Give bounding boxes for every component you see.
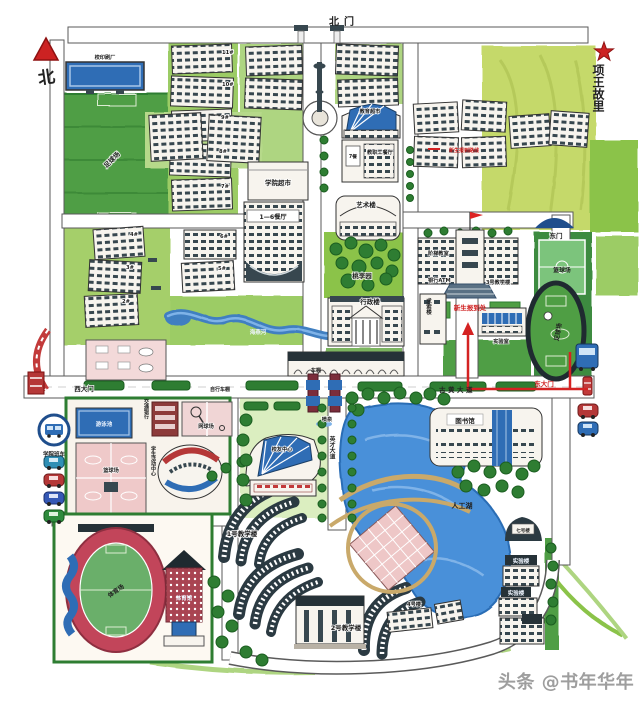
b7-label: 七号楼: [516, 527, 530, 534]
teach1-label: 1号教学楼: [227, 529, 258, 538]
car-icon: [44, 510, 64, 524]
car-icon: [44, 456, 64, 470]
car-icon: [578, 422, 598, 437]
pingpong-plaza: [86, 340, 166, 380]
canteen16-label: 1—6餐厅: [259, 213, 287, 221]
west-gate-arch: [28, 330, 48, 394]
front-steps: [442, 284, 496, 298]
north-boundary-road: [68, 27, 588, 43]
lab2-label: 实验楼: [508, 589, 525, 597]
haiyan-label: 海燕河: [250, 328, 267, 336]
east-gate-north-label: 东门: [550, 231, 564, 240]
bus-icon: [576, 344, 598, 371]
dorm-7: [171, 178, 232, 211]
activity-label: 学生活动中心: [150, 445, 156, 477]
soccer-ball-icon: [544, 312, 552, 320]
bikeshed1-label: 自行车棚: [210, 386, 230, 393]
alumni-center: [246, 434, 321, 496]
dorm-5-label: 5#: [218, 266, 226, 272]
bikeshed2-label: 车棚: [311, 367, 321, 374]
staff-canteen-label: 教职工餐厅: [366, 148, 394, 156]
north-gate-label: 北门: [329, 15, 359, 28]
art-label: 艺术楼: [356, 200, 376, 209]
campus-map: 北门 北 项王故里 校印刷厂 足球场 11# 10# 9# 8# 7# 6# 5…: [0, 0, 640, 701]
teach2-label: 2号教学楼: [331, 623, 362, 632]
dorm-4-label: 4#: [130, 232, 138, 238]
tennis-label: 网球场: [198, 422, 214, 430]
car-icons-left: [44, 456, 64, 524]
lab1-label: 实验楼: [513, 557, 530, 565]
gym-label: 体育馆: [176, 594, 193, 602]
pillar-teaching-building: [294, 596, 366, 649]
lake-label: 人工湖: [452, 501, 473, 510]
watermark: 头条 @书年华年: [498, 671, 634, 693]
compass-north-label: 北: [37, 67, 57, 89]
college-market-label: 学院超市: [265, 178, 292, 187]
car-icon: [44, 492, 64, 506]
admin-label: 行政楼: [359, 297, 380, 306]
stadium-block: [54, 514, 212, 662]
shuttle-label: 学院班车: [43, 450, 66, 458]
west-gate-label: 西大门: [74, 384, 94, 393]
bldg4-label: 4号楼: [407, 600, 422, 608]
lab-small-label: 实验室: [493, 337, 509, 345]
basketball-left-label: 篮球场: [102, 466, 119, 474]
sculpture-pole: [317, 62, 322, 112]
dorm-10-label: 10#: [222, 82, 234, 88]
lecture-label: 阶梯教室: [428, 249, 449, 257]
east-gate-main-label: 东大门: [534, 379, 554, 388]
dorm-3-label: 3#: [126, 265, 134, 271]
teach3-label: 3号教学楼: [486, 278, 511, 286]
map-canvas: 北门 北 项王故里 校印刷厂 足球场 11# 10# 9# 8# 7# 6# 5…: [0, 0, 640, 701]
dorm-2: [84, 294, 139, 328]
colonnade-building: [288, 352, 404, 376]
southeast-buildings: [499, 517, 544, 644]
qiusuo-label: 求索楼: [425, 297, 432, 316]
car-icon: [44, 474, 64, 488]
fountain-label: 喷泉: [322, 415, 333, 423]
small-lab-building: [478, 308, 526, 336]
dorm-9-label: 9#: [221, 115, 229, 121]
dorm-2-label: 2#: [122, 299, 130, 305]
print-factory-label: 校印刷厂: [95, 53, 116, 61]
dorm-6: [184, 230, 236, 259]
library-glass-column: [492, 410, 512, 466]
registration-label: 新生报到处: [454, 303, 487, 312]
landmark-label: 项王故里: [591, 64, 605, 113]
edu-market-label: 教育超市: [359, 107, 382, 115]
dorm-8-label: 8#: [219, 149, 227, 155]
dorm-7-label: 7#: [221, 184, 229, 190]
library-label: 图书馆: [455, 416, 475, 425]
guhuang-label: 古黄大道: [439, 385, 475, 394]
canteen7-label: 7餐: [349, 153, 357, 160]
yingcai-label: 英才大道: [328, 435, 335, 460]
atm-label: 银行ATM: [428, 276, 451, 284]
taoli-label: 桃李园: [352, 271, 372, 280]
library: [430, 408, 542, 466]
bank-label: 交通银行: [143, 398, 150, 420]
dorm-6-label: 6#: [220, 234, 228, 240]
dorm-10: [170, 76, 233, 108]
car-icon: [578, 404, 598, 419]
print-factory: [66, 62, 144, 94]
road-b: [403, 43, 418, 378]
route-legend-label: 新生报到路线: [449, 147, 479, 154]
west-road: [50, 40, 64, 380]
pool-label: 游泳池: [96, 420, 113, 428]
qiusuo-building: [420, 294, 446, 344]
basketball-right-label: 篮球场: [552, 266, 571, 274]
star-icon: [595, 42, 614, 60]
hoop-stand: [104, 482, 118, 492]
shuttle-stop: [39, 415, 69, 445]
dorm-11-label: 11#: [222, 50, 234, 56]
dorm-11: [172, 44, 233, 74]
dorm-5: [181, 261, 234, 293]
southwest-block: [66, 398, 232, 514]
alumni-label: 校友中心: [272, 445, 294, 453]
route-marker-icon: [583, 377, 592, 395]
staff-canteen: [342, 140, 398, 182]
